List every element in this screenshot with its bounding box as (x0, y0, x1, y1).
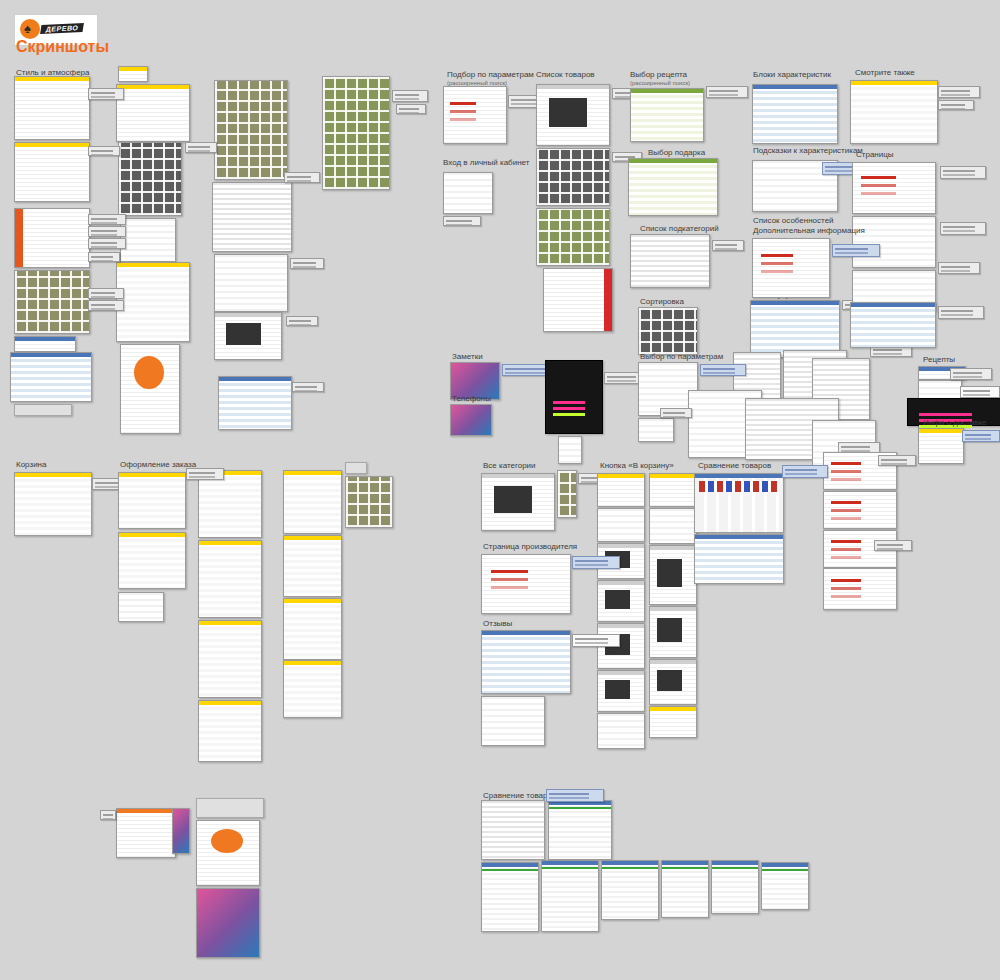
screenshot-thumb (597, 670, 645, 712)
group-label-infa_o_dostavke: Инфа о доставке (923, 418, 987, 428)
screenshot-thumb (198, 700, 262, 762)
screenshot-thumb (481, 696, 545, 746)
screenshot-thumb (536, 84, 610, 146)
annotation-note (186, 468, 224, 480)
screenshot-thumb (120, 344, 180, 434)
annotation-note (88, 252, 120, 262)
screenshot-thumb (630, 234, 710, 288)
screenshot-thumb (649, 606, 697, 658)
screenshot-thumb (118, 472, 186, 529)
screenshot-thumb (443, 172, 493, 214)
screenshot-thumb (214, 312, 282, 360)
screenshot-thumb (649, 473, 697, 507)
screenshot-thumb (597, 580, 645, 622)
screenshot-thumb (14, 142, 90, 202)
group-label-vybor_podarka: Выбор подарка (648, 148, 705, 158)
screenshot-thumb (14, 208, 90, 268)
screenshot-thumb (628, 158, 718, 216)
annotation-note (960, 386, 1000, 398)
screenshot-thumb (214, 254, 288, 312)
annotation-note (88, 300, 124, 311)
group-label-spisok_tovarov: Список товаров (536, 70, 595, 80)
annotation-note (88, 88, 124, 100)
group-label-knopka_v_korzinu: Кнопка «В корзину» (600, 461, 674, 471)
screenshot-thumb (322, 76, 390, 190)
screenshot-thumb (14, 404, 72, 416)
screenshot-thumb (601, 860, 659, 920)
screenshot-thumb (711, 860, 759, 914)
group-label-korzina: Корзина (16, 460, 46, 470)
annotation-note (88, 146, 120, 156)
screenshot-board: ♠ ДЕРЕВО Скриншоты Стиль и атмосфераПодб… (0, 0, 1000, 980)
annotation-note (443, 216, 481, 226)
screenshot-thumb (481, 554, 571, 614)
annotation-note (286, 316, 318, 326)
annotation-note (392, 90, 428, 102)
screenshot-thumb (283, 470, 342, 534)
screenshot-thumb (558, 436, 582, 464)
annotation-note (782, 465, 828, 478)
screenshot-thumb (345, 462, 367, 474)
screenshot-thumb (548, 800, 612, 860)
screenshot-thumb (649, 508, 697, 544)
group-label-sravnenie_tovarov_1: Сравнение товаров (698, 461, 771, 471)
screenshot-thumb (481, 800, 545, 860)
screenshot-thumb (638, 307, 698, 355)
annotation-note (292, 382, 324, 392)
annotation-note (938, 86, 980, 98)
tree-icon: ♠ (20, 19, 40, 39)
screenshot-thumb (630, 88, 704, 142)
screenshot-thumb (649, 545, 697, 605)
screenshot-thumb (196, 820, 260, 886)
annotation-note (940, 166, 986, 179)
group-label-podbor: Подбор по параметрам (447, 70, 534, 80)
screenshot-thumb (823, 491, 897, 529)
screenshot-thumb (536, 208, 610, 266)
screenshot-thumb (118, 66, 148, 82)
screenshot-thumb (694, 534, 784, 584)
screenshot-thumb (545, 360, 603, 434)
screenshot-thumb (761, 862, 809, 910)
screenshot-thumb (541, 860, 599, 932)
annotation-note (290, 258, 324, 269)
screenshot-thumb (283, 598, 342, 660)
group-label-podskazki: Подсказки к характеристикам (753, 146, 863, 156)
annotation-note (938, 306, 984, 319)
group-label-oformlenie_zakaza: Оформление заказа (120, 460, 196, 470)
screenshot-thumb (172, 808, 190, 854)
annotation-note (962, 430, 1000, 442)
annotation-note (938, 100, 974, 110)
group-label-telefony: Телефоны (452, 394, 491, 404)
screenshot-thumb (536, 148, 610, 206)
annotation-note (938, 262, 980, 274)
screenshot-thumb (212, 182, 292, 252)
logo-wordmark: ДЕРЕВО (40, 23, 84, 34)
group-label2-spisok_osobennostej: Дополнительная информация (753, 226, 865, 236)
annotation-note (832, 244, 880, 257)
group-label-vse_kategorii: Все категории (483, 461, 536, 471)
screenshot-thumb (450, 404, 492, 436)
annotation-note (700, 364, 746, 376)
screenshot-thumb (14, 472, 92, 536)
annotation-note (88, 214, 126, 225)
group-label-recepty: Рецепты (923, 355, 955, 365)
screenshot-thumb (649, 659, 697, 705)
annotation-note (874, 540, 912, 551)
screenshot-thumb (850, 80, 938, 144)
group-sublabel-vybor_recepta: (расширенный поиск) (630, 80, 690, 87)
screenshot-thumb (198, 470, 262, 538)
screenshot-thumb (597, 508, 645, 542)
page-title: Скриншоты (16, 38, 109, 56)
screenshot-thumb (283, 660, 342, 718)
screenshot-thumb (10, 352, 92, 402)
screenshot-thumb (198, 620, 262, 698)
screenshot-thumb (918, 428, 964, 464)
group-label-vybor_po_parametram: Выбор по параметрам (640, 352, 723, 362)
group-label-bloki_harakteristik: Блоки характеристик (753, 70, 831, 80)
screenshot-thumb (481, 630, 571, 694)
screenshot-thumb (597, 713, 645, 749)
annotation-note (100, 810, 116, 820)
annotation-note (878, 455, 916, 466)
group-label-otzyvy: Отзывы (483, 619, 512, 629)
annotation-note (572, 556, 620, 569)
group-label-vybor_recepta: Выбор рецепта (630, 70, 687, 80)
screenshot-thumb (752, 84, 838, 144)
annotation-note (660, 408, 692, 418)
annotation-note (284, 172, 320, 183)
annotation-note (88, 288, 124, 299)
screenshot-thumb (118, 532, 186, 589)
screenshot-thumb (196, 888, 260, 958)
screenshot-thumb (443, 86, 507, 144)
screenshot-thumb (196, 798, 264, 818)
group-label-zametki: Заметки (452, 352, 483, 362)
annotation-note (940, 222, 986, 235)
screenshot-thumb (823, 568, 897, 610)
annotation-note (396, 104, 426, 114)
screenshot-thumb (218, 376, 292, 430)
screenshot-thumb (694, 473, 784, 533)
screenshot-thumb (481, 862, 539, 932)
group-label-spisok_osobennostej: Список особенностей (753, 216, 834, 226)
screenshot-thumb (14, 336, 76, 352)
group-label-vhod: Вход в личный кабинет (443, 158, 529, 168)
screenshot-thumb (116, 808, 176, 858)
screenshot-thumb (283, 535, 342, 597)
screenshot-thumb (198, 540, 262, 618)
screenshot-thumb (557, 470, 577, 518)
group-label-smotrite_takzhe: Смотрите также (855, 68, 915, 78)
screenshot-thumb (116, 84, 190, 142)
group-label-stranica_proizvoditelya: Страница производителя (483, 542, 577, 552)
screenshot-thumb (850, 302, 936, 348)
annotation-note (706, 86, 748, 98)
screenshot-thumb (14, 76, 90, 140)
screenshot-thumb (852, 216, 936, 268)
annotation-note (712, 240, 744, 251)
group-label-spisok_podkategorij: Список подкатегорий (640, 224, 719, 234)
screenshot-thumb (752, 238, 830, 298)
annotation-note (950, 368, 992, 380)
screenshot-thumb (214, 80, 288, 180)
group-label-sortirovka: Сортировка (640, 297, 684, 307)
screenshot-thumb (118, 142, 182, 216)
screenshot-thumb (481, 473, 555, 531)
screenshot-thumb (638, 418, 674, 442)
screenshot-thumb (118, 592, 164, 622)
screenshot-thumb (649, 706, 697, 738)
screenshot-thumb (116, 262, 190, 342)
group-label-stranicy: Страницы (856, 150, 894, 160)
screenshot-thumb (543, 268, 613, 332)
annotation-note (572, 634, 620, 647)
annotation-note (88, 238, 126, 249)
screenshot-thumb (120, 218, 176, 262)
screenshot-thumb (597, 473, 645, 507)
annotation-note (546, 789, 604, 802)
screenshot-thumb (14, 270, 90, 334)
screenshot-thumb (852, 162, 936, 214)
annotation-note (88, 226, 126, 237)
screenshot-thumb (661, 860, 709, 918)
screenshot-thumb (345, 476, 393, 528)
annotation-note (185, 142, 217, 153)
